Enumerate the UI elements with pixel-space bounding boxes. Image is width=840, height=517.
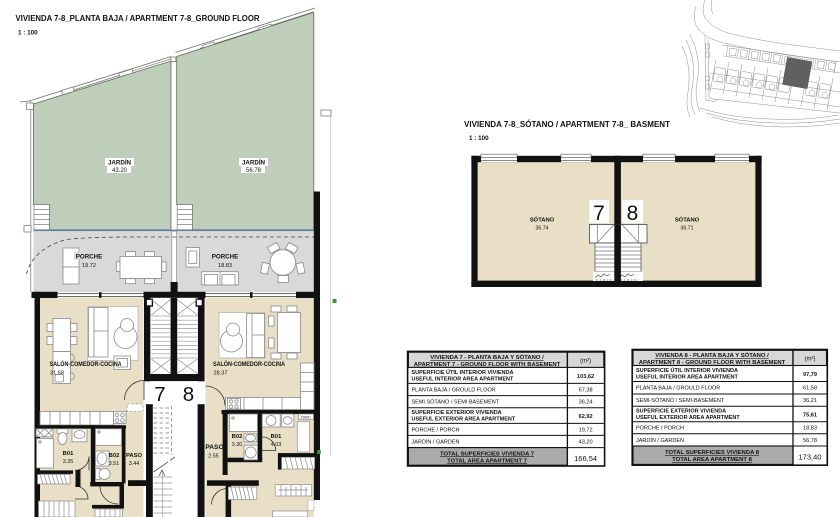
svg-text:PLANTA BAJA / GROULD FLOOR: PLANTA BAJA / GROULD FLOOR — [636, 386, 720, 392]
svg-text:36.74: 36.74 — [536, 226, 549, 232]
svg-text:7: 7 — [154, 383, 165, 406]
svg-text:SEMI SÓTANO / SEMI BASEMENT: SEMI SÓTANO / SEMI BASEMENT — [412, 399, 500, 406]
svg-text:3.30: 3.30 — [232, 442, 243, 448]
svg-text:103,62: 103,62 — [577, 374, 594, 380]
svg-text:VIVIENDA 7-8_PLANTA BAJA / APA: VIVIENDA 7-8_PLANTA BAJA / APARTMENT 7-8… — [16, 13, 261, 23]
svg-text:USEFUL INTERIOR AREA APARTMENT: USEFUL INTERIOR AREA APARTMENT — [412, 376, 514, 382]
svg-text:TOTAL AREA APARTMENT 8: TOTAL AREA APARTMENT 8 — [672, 457, 752, 463]
svg-text:SUPERFICIE EXTERIOR VIVIENDA: SUPERFICIE EXTERIOR VIVIENDA — [636, 408, 726, 414]
svg-text:DWC: DWC — [301, 415, 311, 420]
svg-text:USEFUL EXTERIOR AREA APARTMENT: USEFUL EXTERIOR AREA APARTMENT — [636, 415, 740, 421]
svg-text:36.71: 36.71 — [681, 226, 694, 232]
svg-text:(m²): (m²) — [805, 357, 816, 363]
svg-text:PASO: PASO — [126, 453, 142, 459]
svg-text:TOTAL AREA APARTMENT 7: TOTAL AREA APARTMENT 7 — [447, 458, 527, 464]
svg-text:19.72: 19.72 — [82, 263, 96, 269]
svg-text:36,21: 36,21 — [803, 398, 817, 404]
svg-text:TOTAL SUPERFICIES VIVIENDA 7: TOTAL SUPERFICIES VIVIENDA 7 — [440, 451, 535, 457]
svg-text:19,72: 19,72 — [579, 427, 593, 433]
svg-text:PORCHE / PORCH: PORCHE / PORCH — [636, 426, 684, 432]
svg-text:PORCHE / PORCH: PORCHE / PORCH — [412, 427, 460, 433]
svg-text:USEFUL EXTERIOR AREA APARTMENT: USEFUL EXTERIOR AREA APARTMENT — [412, 417, 516, 423]
svg-text:B01: B01 — [271, 434, 282, 440]
svg-text:8: 8 — [627, 202, 639, 225]
svg-text:VIVIENDA 8 - PLANTA BAJA Y SÓT: VIVIENDA 8 - PLANTA BAJA Y SÓTANO / — [655, 351, 769, 359]
svg-text:VIVIENDA 7-8_SÓTANO / APARTME: VIVIENDA 7-8_SÓTANO / APARTMENT 7-8_ BAS… — [464, 118, 671, 129]
svg-text:B01: B01 — [63, 451, 74, 457]
svg-text:SUPERFICIE ÚTIL INTERIOR VIVIE: SUPERFICIE ÚTIL INTERIOR VIVIENDA — [412, 369, 514, 376]
svg-text:PASO: PASO — [205, 444, 223, 451]
svg-text:B02: B02 — [109, 453, 120, 459]
svg-text:31.68: 31.68 — [50, 371, 64, 377]
svg-text:TOTAL SUPERFICIES VIVIENDA 8: TOTAL SUPERFICIES VIVIENDA 8 — [665, 450, 760, 456]
svg-text:USEFUL INTERIOR AREA APARTMENT: USEFUL INTERIOR AREA APARTMENT — [636, 375, 738, 381]
svg-text:APARTMENT 7 - GROUND FLOOR WIT: APARTMENT 7 - GROUND FLOOR WITH BASEMENT — [414, 362, 561, 368]
svg-text:JARDÍN / GARDEN: JARDÍN / GARDEN — [636, 437, 684, 444]
svg-text:3.44: 3.44 — [129, 461, 140, 467]
svg-text:(m²): (m²) — [580, 359, 591, 365]
svg-text:97,79: 97,79 — [803, 372, 817, 378]
svg-text:61,58: 61,58 — [803, 386, 817, 392]
svg-text:43.20: 43.20 — [112, 168, 128, 174]
svg-text:SUPERFICIE EXTERIOR VIVIENDA: SUPERFICIE EXTERIOR VIVIENDA — [412, 410, 502, 416]
svg-text:VIVIENDA 7 - PLANTA BAJA Y SÓT: VIVIENDA 7 - PLANTA BAJA Y SÓTANO / — [430, 353, 544, 361]
svg-text:67,38: 67,38 — [579, 388, 593, 394]
svg-text:2.55: 2.55 — [208, 454, 219, 460]
svg-text:62,92: 62,92 — [579, 414, 593, 420]
svg-text:1 : 100: 1 : 100 — [469, 135, 489, 142]
svg-text:JARDÍN: JARDÍN — [242, 159, 266, 167]
svg-text:3.35: 3.35 — [63, 459, 74, 465]
svg-text:PLANTA BAJA / GROULD FLOOR: PLANTA BAJA / GROULD FLOOR — [412, 388, 496, 394]
svg-text:SÓTANO: SÓTANO — [530, 216, 555, 224]
svg-text:B02: B02 — [232, 434, 243, 440]
svg-text:75,61: 75,61 — [803, 412, 817, 418]
svg-text:56,78: 56,78 — [803, 438, 817, 444]
svg-text:PORCHE: PORCHE — [212, 254, 238, 261]
svg-text:SUPERFICIE ÚTIL INTERIOR VIVIE: SUPERFICIE ÚTIL INTERIOR VIVIENDA — [636, 367, 738, 374]
svg-text:PORCHE: PORCHE — [76, 254, 102, 261]
svg-text:4.03: 4.03 — [271, 442, 282, 448]
svg-text:JARDÍN: JARDÍN — [108, 159, 132, 167]
svg-text:3.51: 3.51 — [109, 461, 120, 467]
svg-text:166,54: 166,54 — [574, 454, 597, 463]
svg-text:1 : 100: 1 : 100 — [18, 30, 38, 37]
svg-text:18,83: 18,83 — [803, 426, 817, 432]
svg-text:SÓTANO: SÓTANO — [675, 216, 700, 224]
svg-text:56.78: 56.78 — [246, 168, 262, 174]
svg-text:JARDÍN / GARDEN: JARDÍN / GARDEN — [412, 439, 460, 446]
svg-text:7: 7 — [593, 202, 605, 225]
svg-text:36,24: 36,24 — [579, 400, 593, 406]
svg-text:173,40: 173,40 — [799, 453, 822, 462]
svg-text:SEMI-SÓTANO / SEMI-BASEMENT: SEMI-SÓTANO / SEMI-BASEMENT — [636, 397, 725, 404]
svg-text:APARTMENT 8 - GROUND FLOOR WIT: APARTMENT 8 - GROUND FLOOR WITH BASEMENT — [639, 360, 786, 366]
svg-text:SALÓN-COMEDOR-COCINA: SALÓN-COMEDOR-COCINA — [213, 359, 285, 368]
svg-text:8: 8 — [183, 383, 194, 406]
svg-text:SALÓN-COMEDOR-COCINA: SALÓN-COMEDOR-COCINA — [50, 359, 122, 368]
svg-text:18.83: 18.83 — [218, 263, 232, 269]
svg-text:43,20: 43,20 — [579, 440, 593, 446]
svg-text:28.37: 28.37 — [214, 371, 228, 377]
